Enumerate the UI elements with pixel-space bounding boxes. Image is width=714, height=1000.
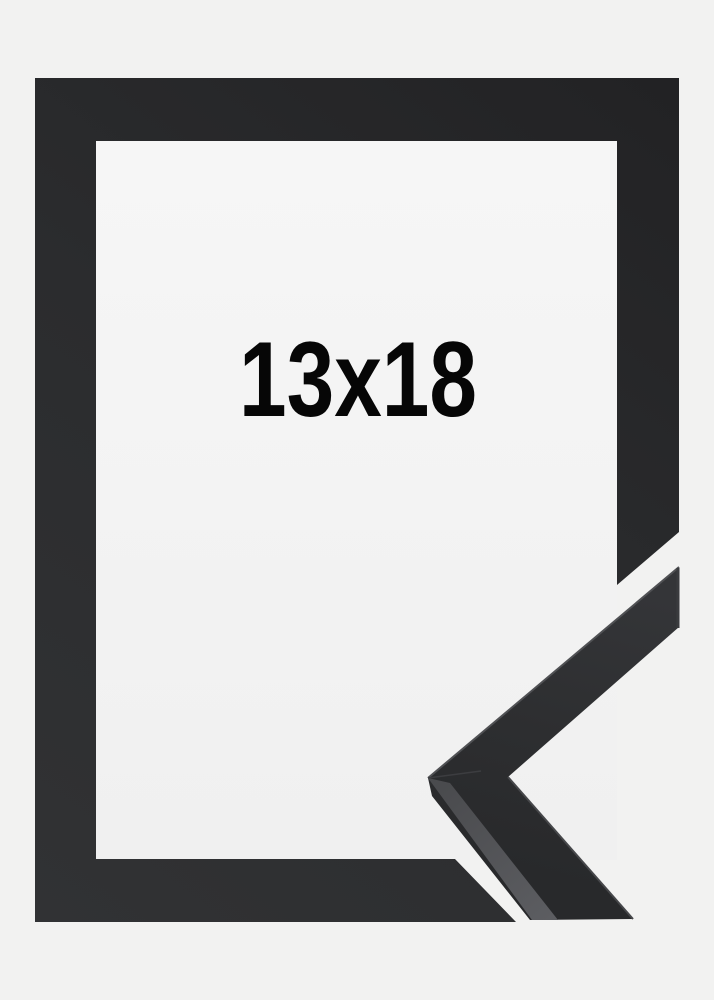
product-photo: 13x18 — [0, 0, 714, 1000]
size-label: 13x18 — [239, 326, 477, 433]
frame-window — [96, 141, 617, 860]
frame-illustration — [0, 0, 714, 1000]
